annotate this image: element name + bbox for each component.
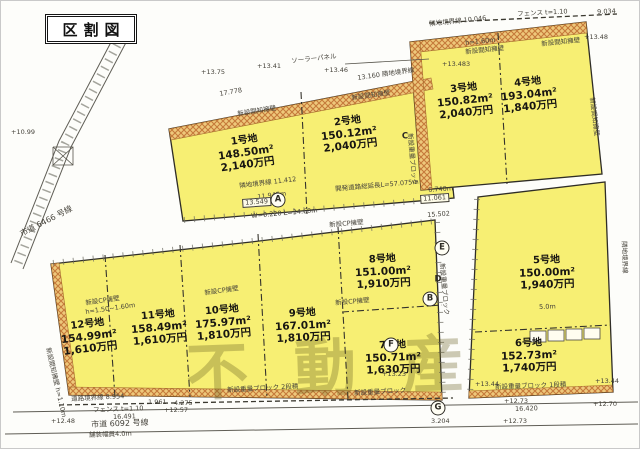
annotation: 3.204	[431, 418, 450, 425]
annotation: +12.70	[593, 401, 617, 408]
annotation: 新設重量ブロック 1段積	[495, 382, 566, 391]
annotation: +10.99	[11, 129, 35, 136]
annotation: 開発道路総延長L=57.075m	[335, 179, 419, 193]
annotation: +12.73	[503, 418, 527, 425]
lot-price: 1,940万円	[519, 278, 575, 292]
annotation: 新設CP擁壁	[335, 297, 370, 306]
lot-label: 8号地151.00m²1,910万円	[354, 252, 412, 291]
annotation: 17.778	[219, 87, 243, 97]
annotation: +13.44	[595, 378, 619, 385]
survey-marker-E: E	[435, 241, 450, 256]
annotation: 新設重量ブロック	[439, 263, 450, 315]
annotation: +13.41	[257, 63, 281, 70]
annotation: 隣地境界線	[621, 241, 629, 274]
annotation: 道路境界線 8.954	[71, 393, 124, 402]
annotation: +12.73	[504, 398, 528, 405]
lot-label: 11号地158.49m²1,610万円	[129, 307, 188, 348]
annotation: 新設間知擁壁	[465, 45, 504, 56]
annotation: フェンス t=1.10	[517, 8, 568, 17]
annotation: 15.502	[427, 210, 450, 218]
annotation: 16.420	[515, 405, 538, 412]
survey-marker-F: F	[384, 338, 399, 353]
annotation: +12.57	[164, 407, 188, 414]
annotation: +12.48	[51, 418, 75, 425]
lot-price: 1,810万円	[275, 330, 332, 345]
lot-label: 5号地150.00m²1,940万円	[518, 254, 575, 292]
annotation: 新設間知擁壁	[351, 90, 391, 102]
annotation: 新設CP擁壁	[329, 219, 364, 228]
annotation: 新設重量ブロック	[354, 387, 406, 396]
annotation: +13.483	[442, 61, 470, 68]
lot-price: 1,910万円	[355, 276, 412, 291]
annotation: 11.061	[420, 193, 449, 203]
lot-label: 1号地148.50m²2,140万円	[216, 131, 277, 175]
lot-price: 1,740万円	[501, 361, 557, 375]
annotation: 13.160 隣地境界線	[357, 67, 415, 81]
annotation: 5.0m	[539, 303, 556, 310]
survey-marker-D: D	[432, 274, 445, 287]
annotation: +13.46	[324, 67, 348, 74]
lot-division-drawing: 不動産 区割図 1号地148.50m²2,140万円2号地150.12m²2,0…	[0, 0, 640, 449]
lot-label: 12号地154.99m²1,610万円	[59, 315, 119, 358]
annotation: 1.961	[148, 399, 167, 406]
lot-label: 6号地152.73m²1,740万円	[500, 337, 557, 375]
lot-label: 10号地175.97m²1,810万円	[193, 302, 252, 343]
annotation: +13.23	[382, 371, 406, 378]
lot-label: 4号地193.04m²1,840万円	[499, 74, 559, 116]
annotation: +13.75	[201, 69, 225, 76]
annotation: 舗装幅員4.0m	[89, 431, 132, 439]
lot-label: 9号地167.01m²1,810万円	[274, 306, 332, 345]
survey-marker-A: A	[271, 193, 286, 208]
survey-marker-G: G	[431, 401, 446, 416]
annotation: 市道 6466 号線	[19, 205, 74, 238]
annotation: +13.48	[584, 34, 608, 41]
lot-label: 2号地150.12m²2,040万円	[319, 112, 379, 155]
annotation: 市道 6092 号線	[91, 419, 149, 429]
annotation: 新設間知擁壁	[589, 97, 600, 137]
annotation: 13.549	[242, 197, 271, 207]
survey-marker-C: C	[399, 131, 412, 144]
annotation: 新設間知擁壁	[237, 105, 277, 118]
label-layer: 1号地148.50m²2,140万円2号地150.12m²2,040万円3号地1…	[1, 1, 640, 449]
annotation: ソーラーパネル	[291, 53, 337, 64]
annotation: 隣地境界線 11.412	[239, 176, 297, 189]
annotation: 新設重量ブロック 2段積	[227, 383, 298, 393]
annotation: 新設CP擁壁	[204, 285, 239, 296]
annotation: W=0.220 L=34.60m	[251, 207, 318, 219]
annotation: 9.034	[597, 8, 616, 15]
survey-marker-B: B	[423, 292, 438, 307]
annotation: 隣地境界線 10.046	[429, 15, 487, 27]
annotation: 新設間知擁壁	[541, 37, 580, 48]
annotation: 6.740m	[428, 185, 453, 193]
lot-label: 3号地150.82m²2,040万円	[435, 80, 495, 122]
